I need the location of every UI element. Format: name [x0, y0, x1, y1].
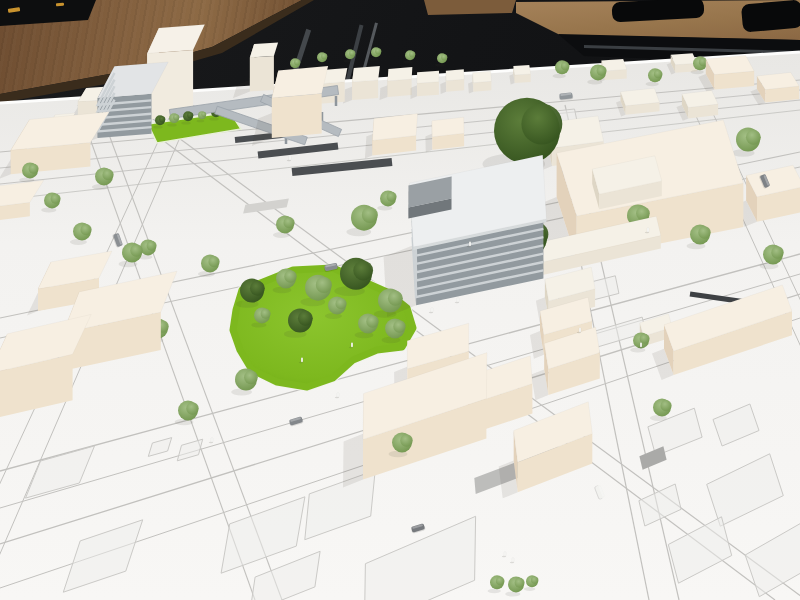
photo-architectural-model [0, 0, 800, 600]
top-tower [233, 43, 278, 99]
tree-light [435, 53, 447, 66]
top-row-block [509, 65, 530, 85]
scale-model-board [0, 0, 800, 600]
tree-light [315, 52, 327, 65]
tree-light [369, 47, 381, 60]
tree-light [343, 49, 355, 62]
tree-light [403, 50, 415, 63]
